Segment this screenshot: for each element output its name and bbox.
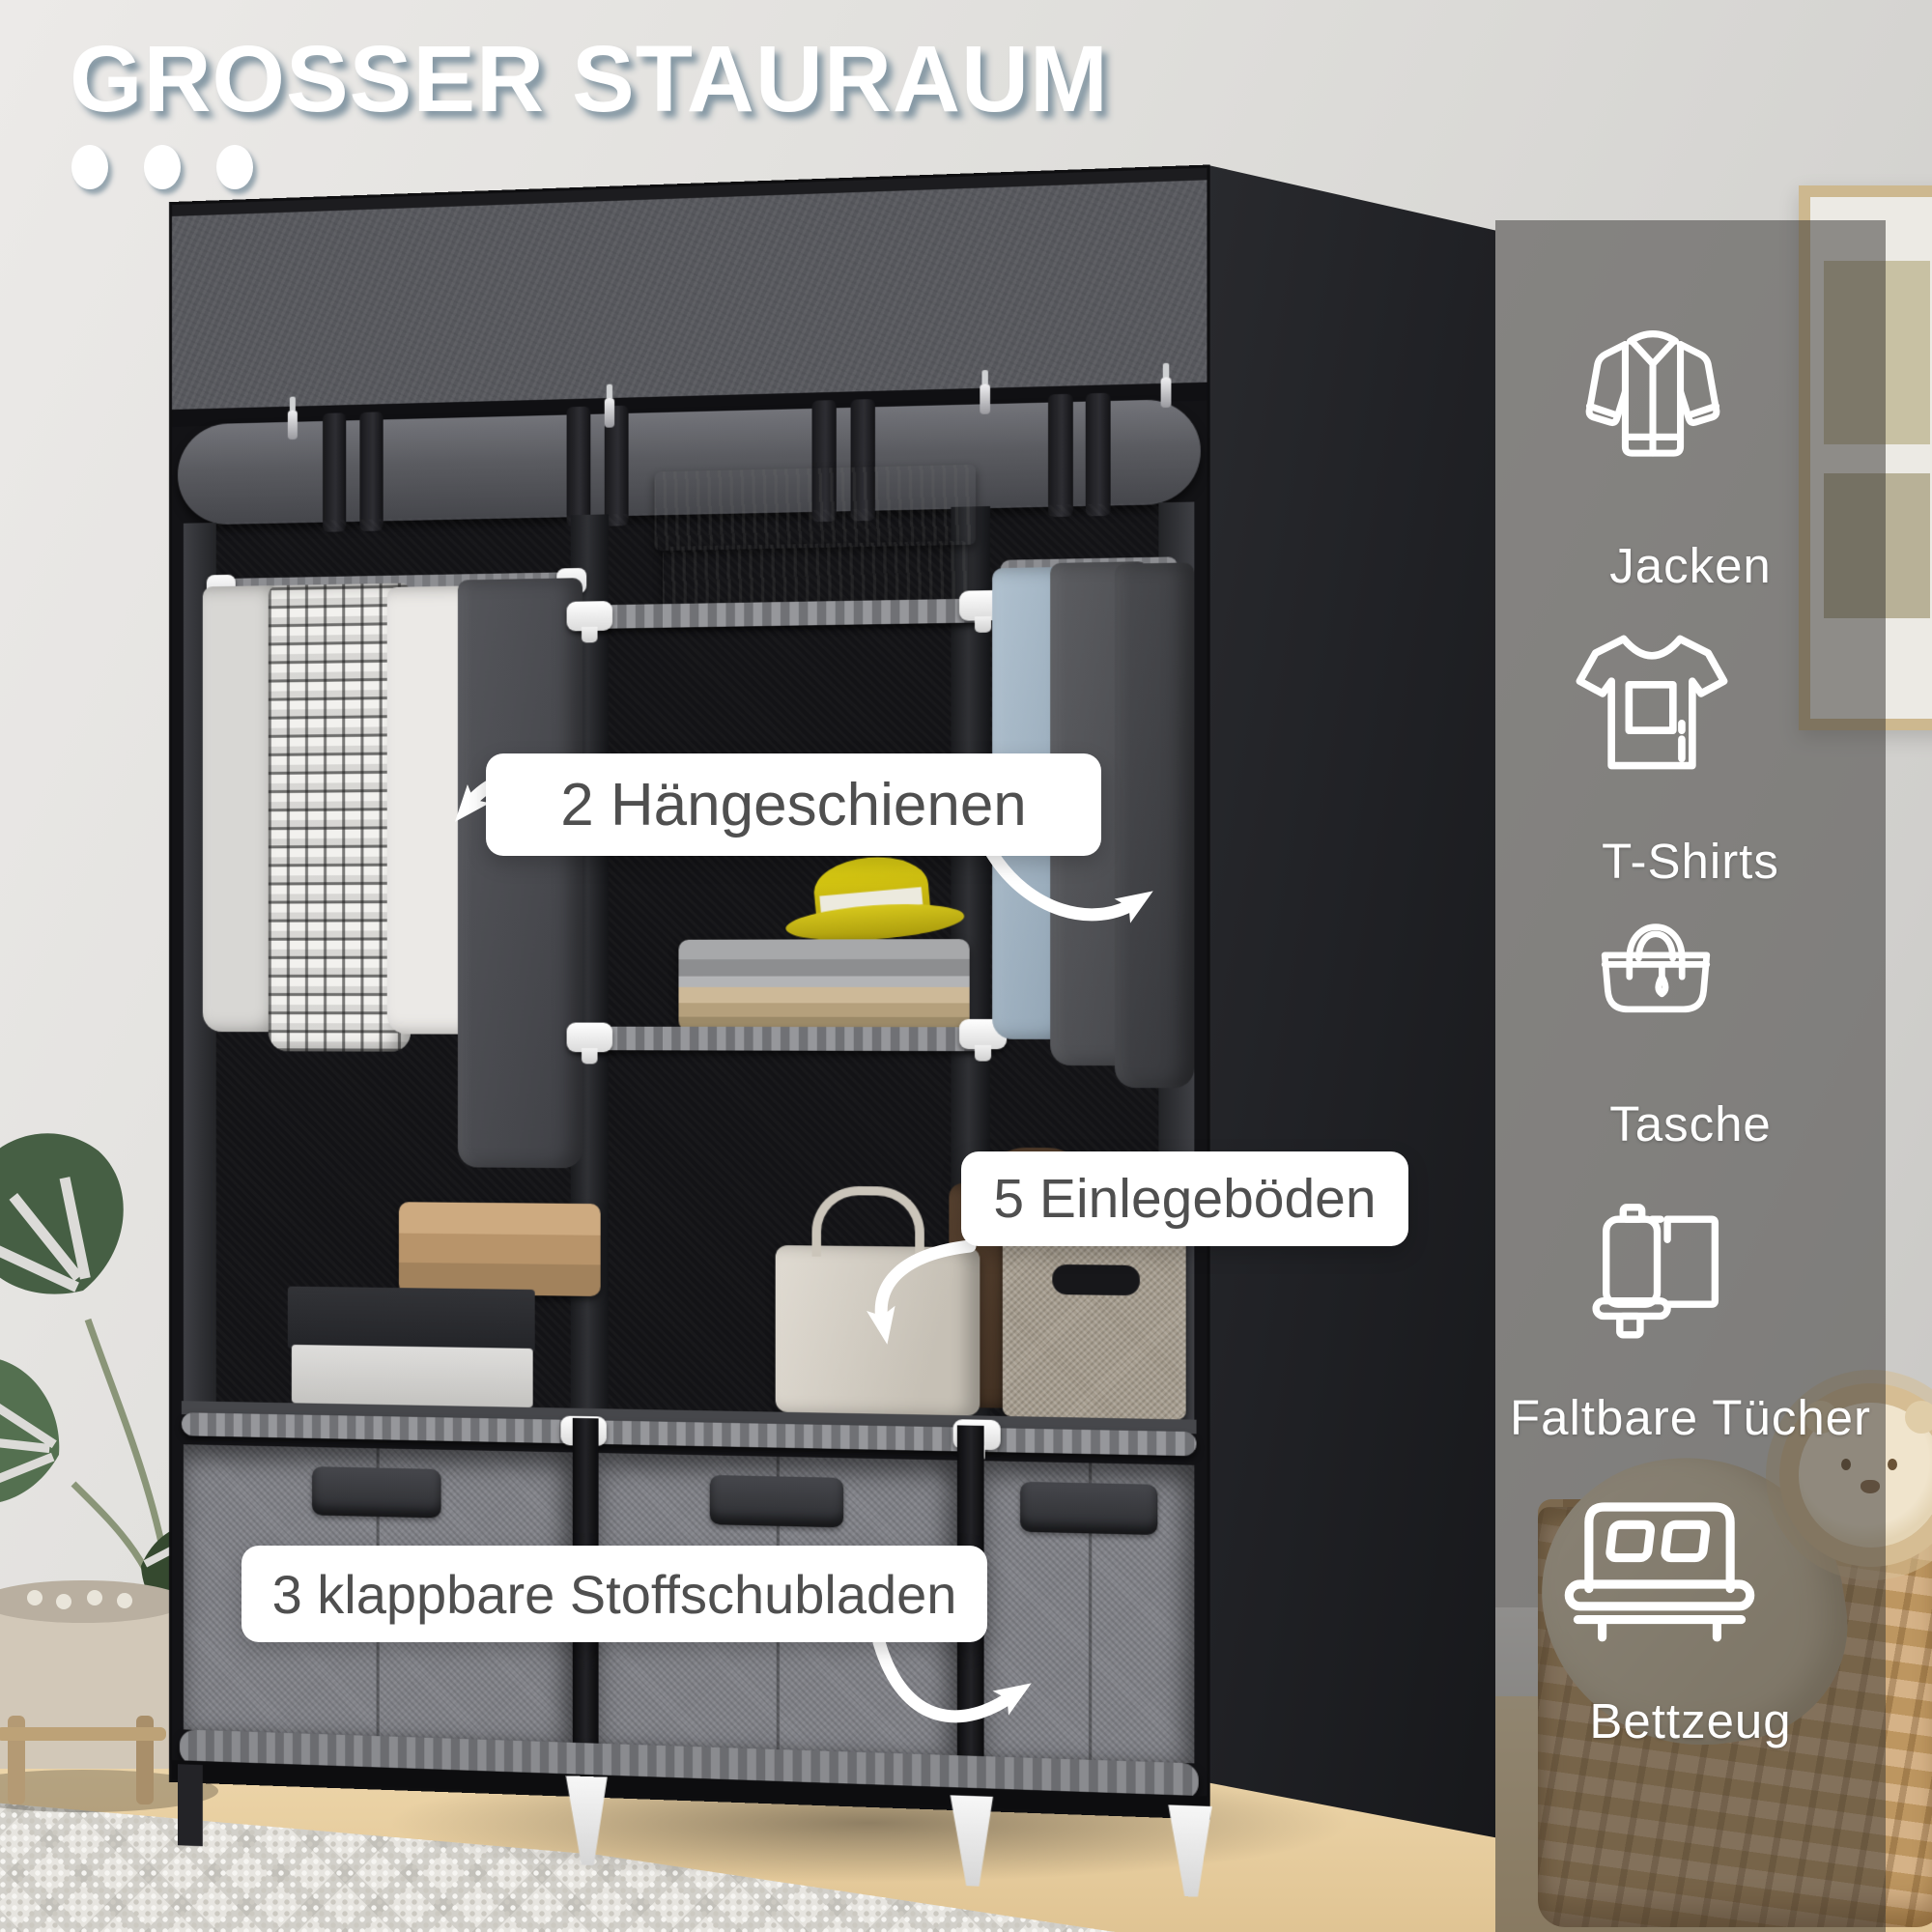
bed-icon [1544,1492,1776,1646]
zipper-pull [288,411,298,440]
feature-label: Tasche [1609,1095,1772,1152]
white-box [292,1345,533,1407]
gray-blazer [458,578,582,1168]
folded-towels [399,1202,601,1296]
zipper-pull [980,384,990,413]
tshirt-icon [1556,614,1747,790]
gray-fabric-box [1003,1220,1186,1420]
callout-shelves: 5 Einlegeböden [961,1151,1408,1246]
feature-label: Bettzeug [1589,1692,1791,1749]
shelf-bar [573,1027,990,1052]
zipper-pull [1161,377,1172,408]
folded-towels-icon [1563,1192,1745,1362]
feature-label: Jacken [1609,537,1772,594]
dark-box [288,1287,535,1352]
white-handbag [776,1245,980,1416]
callout-hanging-rails: 2 Hängeschienen [486,753,1101,856]
yellow-hat [785,857,964,943]
wardrobe-foot [178,1764,203,1846]
shelf-connector [567,601,612,631]
wardrobe-top-cover [172,168,1207,423]
drawer-handle [312,1466,441,1518]
title-dot [144,145,181,189]
door-strap [323,412,346,531]
title-dot [216,145,253,189]
zipper-pull [605,398,614,428]
suit-jacket [1115,562,1194,1088]
shelf-bar [573,598,990,629]
product-infographic: Jacken T-Shirts Tasche [0,0,1932,1932]
drawer-handle [1020,1482,1157,1535]
door-strap [1086,393,1111,517]
page-title: GROSSER STAURAUM [70,25,1109,133]
door-strap [359,412,383,531]
shelf-connector [567,1023,612,1053]
feature-label: T-Shirts [1602,833,1779,890]
feature-label: Faltbare Tücher [1510,1389,1871,1446]
box-handle-slot [1052,1264,1140,1295]
drawer-handle [710,1475,843,1527]
door-strap [1048,394,1073,518]
bag-handle [812,1186,924,1258]
feature-overlay-panel: Jacken T-Shirts Tasche [1495,220,1886,1932]
fabric-drawer [984,1461,1195,1763]
plush-eye [1888,1459,1897,1470]
jacket-icon [1570,317,1736,479]
plush-ear [1905,1401,1932,1434]
callout-drawers: 3 klappbare Stoffschubladen [241,1546,987,1642]
door-strap [567,407,591,527]
folded-clothes-stack [678,939,969,1031]
bag-icon [1571,896,1741,1051]
wardrobe-interior [184,502,1194,1431]
title-dot [71,145,108,189]
storage-box-lid [655,465,977,551]
